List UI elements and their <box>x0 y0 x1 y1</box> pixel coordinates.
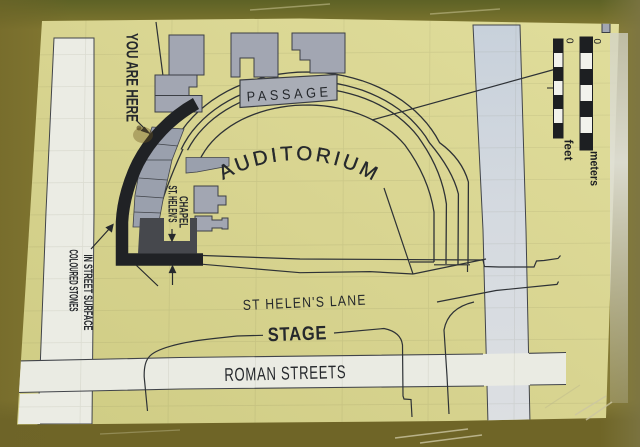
svg-text:YOU ARE HERE: YOU ARE HERE <box>123 33 141 122</box>
svg-text:CHAPEL: CHAPEL <box>177 196 189 228</box>
svg-text:0: 0 <box>564 38 575 44</box>
svg-text:ST. HELEN'S: ST. HELEN'S <box>166 186 178 223</box>
svg-text:ROMAN STREETS: ROMAN STREETS <box>224 361 346 385</box>
svg-text:0: 0 <box>591 39 602 45</box>
svg-text:meters: meters <box>588 151 600 186</box>
svg-text:COLOURED STONES: COLOURED STONES <box>67 250 81 312</box>
svg-text:feet: feet <box>562 140 574 161</box>
svg-text:STAGE: STAGE <box>267 322 327 346</box>
svg-text:IN STREET SURFACE: IN STREET SURFACE <box>81 255 95 331</box>
